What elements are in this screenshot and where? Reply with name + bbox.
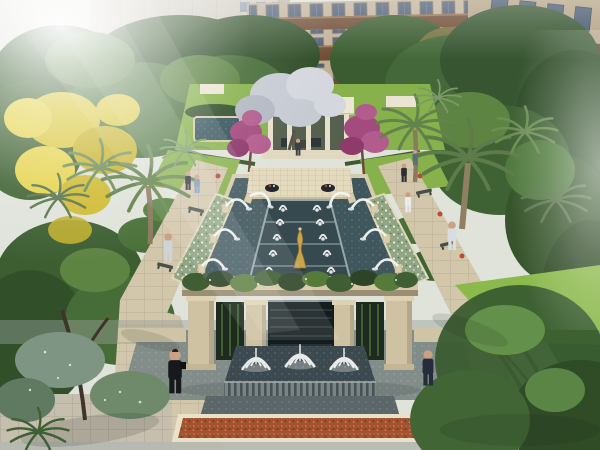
garden-structure-right xyxy=(386,96,416,107)
light-haze xyxy=(0,0,600,340)
courtyard-rendering: Courtyard garden rendering xyxy=(0,0,600,450)
scene-canvas: Courtyard garden rendering xyxy=(0,0,600,450)
